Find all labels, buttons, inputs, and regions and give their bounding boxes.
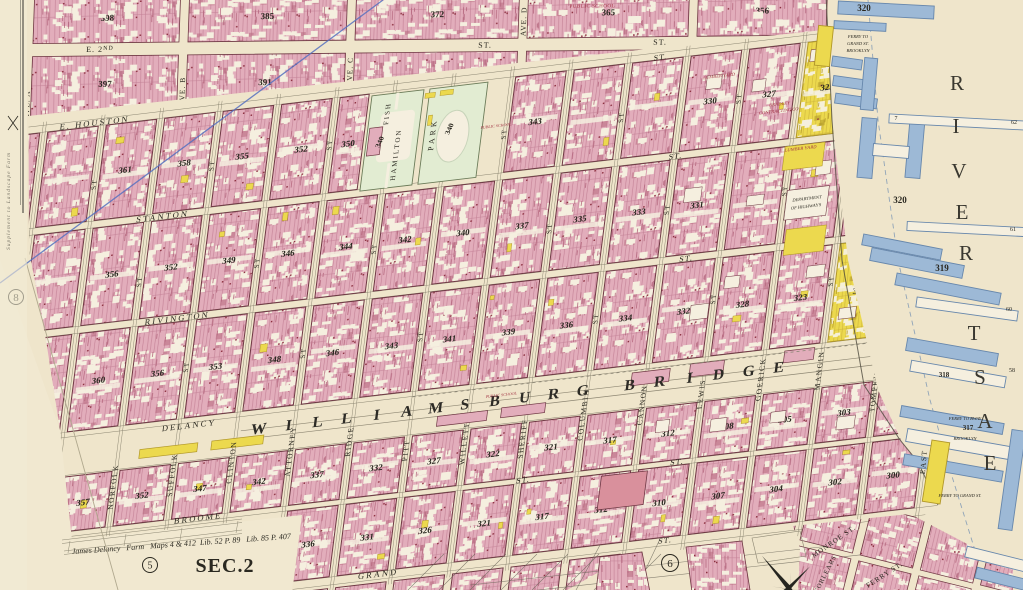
svg-text:W: W [250,420,268,439]
svg-text:320: 320 [893,195,907,205]
svg-text:319: 319 [935,263,949,273]
svg-text:5: 5 [148,561,153,572]
svg-text:60: 60 [1006,307,1012,313]
svg-text:342: 342 [252,476,267,488]
svg-text:E: E [984,451,997,475]
svg-text:S: S [974,365,986,389]
svg-text:352: 352 [294,143,309,155]
svg-text:T: T [968,321,981,345]
svg-text:350: 350 [341,138,356,150]
svg-text:ST: ST [499,128,508,140]
svg-text:322: 322 [486,448,501,460]
svg-text:ST: ST [299,347,308,359]
svg-text:300: 300 [886,469,901,481]
svg-text:R: R [950,71,964,95]
svg-text:I: I [953,114,960,138]
svg-text:356: 356 [105,268,120,280]
svg-text:61: 61 [1010,227,1016,233]
svg-text:331: 331 [360,531,375,543]
svg-text:332: 332 [369,462,384,474]
svg-text:334: 334 [618,312,633,324]
svg-text:335: 335 [573,213,588,225]
svg-text:ST: ST [182,361,191,373]
svg-text:339: 339 [501,326,516,338]
svg-text:ST: ST [709,293,718,305]
svg-text:ST.: ST. [670,457,685,468]
svg-text:337: 337 [515,220,530,232]
svg-text:302: 302 [828,476,843,488]
svg-text:ST: ST [325,139,334,151]
svg-text:ST.: ST. [653,38,667,47]
svg-text:352: 352 [164,261,179,273]
svg-text:327: 327 [427,455,442,467]
svg-text:341: 341 [442,333,457,345]
svg-text:346: 346 [281,248,296,260]
svg-text:336: 336 [559,319,574,331]
svg-text:340: 340 [456,227,471,239]
svg-text:346: 346 [325,347,340,359]
svg-text:FERRY TO: FERRY TO [847,34,869,39]
svg-text:343: 343 [528,116,543,128]
svg-text:V: V [951,159,966,183]
svg-text:391: 391 [258,77,272,87]
svg-text:317: 317 [535,511,550,523]
svg-text:307: 307 [711,490,726,502]
svg-text:ST: ST [734,92,743,104]
svg-text:SEC.2: SEC.2 [196,555,255,577]
svg-text:D: D [712,366,725,384]
svg-text:342: 342 [398,234,413,246]
svg-text:ST.: ST. [679,253,694,264]
svg-text:ST.: ST. [658,535,673,546]
svg-text:7: 7 [895,116,898,122]
svg-text:ST.: ST. [478,41,492,50]
svg-text:337: 337 [310,469,325,481]
svg-text:ST: ST [253,257,262,269]
svg-text:317: 317 [603,434,618,446]
svg-text:343: 343 [384,340,399,352]
svg-text:ST.: ST. [668,151,683,162]
svg-text:62: 62 [1011,120,1017,126]
svg-text:G: G [742,362,756,380]
svg-text:360: 360 [91,374,106,386]
svg-text:ST: ST [591,313,600,325]
svg-text:385: 385 [260,11,274,21]
svg-text:58: 58 [1009,368,1015,374]
svg-text:336: 336 [301,538,316,550]
svg-text:AVE. D: AVE. D [519,7,529,37]
svg-text:R: R [959,241,973,265]
svg-text:304: 304 [769,483,784,495]
svg-text:BROOKLYN: BROOKLYN [847,48,871,53]
svg-text:PUBLIC SCHOOL: PUBLIC SCHOOL [569,4,615,9]
svg-text:ST: ST [826,275,835,287]
svg-text:352: 352 [135,489,150,501]
svg-text:353: 353 [208,361,223,373]
svg-text:U: U [518,389,531,407]
svg-text:Supplement to Landscape Farm: Supplement to Landscape Farm [6,152,12,250]
svg-text:310: 310 [652,497,667,509]
svg-text:GRAND ST.: GRAND ST. [847,41,869,46]
svg-text:358: 358 [177,157,192,169]
svg-text:356: 356 [150,367,165,379]
svg-text:ST: ST [545,222,554,234]
svg-text:317: 317 [963,424,974,432]
svg-text:397: 397 [98,79,112,89]
svg-text:FERRY TO BWAY: FERRY TO BWAY [948,416,982,421]
svg-text:E: E [956,200,969,224]
svg-text:333: 333 [632,206,647,218]
svg-text:ST.: ST. [516,475,531,486]
svg-text:323: 323 [793,292,808,304]
svg-text:320: 320 [857,3,871,13]
svg-text:348: 348 [267,354,282,366]
svg-text:FERRY TO GRAND ST.: FERRY TO GRAND ST. [937,493,981,498]
svg-text:ST.: ST. [653,52,668,63]
svg-text:361: 361 [118,164,133,176]
svg-text:328: 328 [735,298,750,310]
svg-text:318: 318 [939,371,950,379]
svg-text:347: 347 [193,483,208,495]
svg-text:ST: ST [617,111,626,123]
svg-text:ST: ST [207,160,216,172]
svg-text:321: 321 [477,518,492,530]
svg-text:ST: ST [135,276,144,288]
svg-text:M: M [427,399,444,418]
svg-text:332: 332 [676,305,691,317]
svg-text:ST: ST [370,243,379,255]
svg-text:330: 330 [703,95,718,107]
svg-text:A: A [977,409,993,433]
svg-text:326: 326 [418,524,433,536]
svg-text:ST: ST [663,204,672,216]
svg-text:ST: ST [90,178,99,190]
svg-text:BROOKLYN: BROOKLYN [954,436,978,441]
svg-text:6: 6 [667,558,673,570]
svg-text:321: 321 [544,441,559,453]
svg-text:ST: ST [416,330,425,342]
svg-text:344: 344 [339,241,354,253]
svg-text:355: 355 [235,150,250,162]
svg-text:357: 357 [76,496,91,508]
svg-text:349: 349 [222,254,237,266]
